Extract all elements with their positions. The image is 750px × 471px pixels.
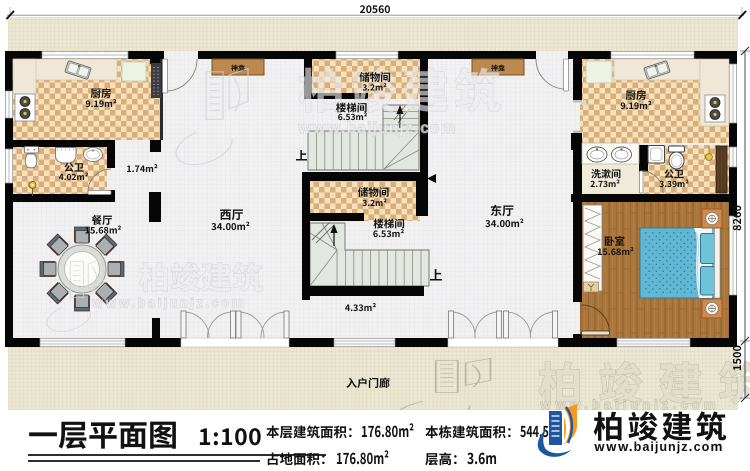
svg-text:2.73m²: 2.73m² — [590, 178, 620, 190]
svg-text:34.00m²: 34.00m² — [485, 216, 524, 230]
svg-text:本层建筑面积：: 本层建筑面积： — [266, 421, 361, 441]
svg-text:1:100: 1:100 — [198, 418, 262, 452]
svg-text:6.53m²: 6.53m² — [373, 227, 405, 240]
svg-text:3.2m²: 3.2m² — [362, 197, 387, 209]
svg-text:本栋建筑面积：: 本栋建筑面积： — [425, 421, 520, 441]
svg-text:柏竣建筑: 柏竣建筑 — [298, 53, 506, 122]
svg-text:占地面积：: 占地面积： — [266, 448, 334, 468]
svg-text:6.53m²: 6.53m² — [338, 111, 368, 123]
svg-text:3.39m²: 3.39m² — [659, 178, 689, 190]
svg-text:一层平面图: 一层平面图 — [28, 411, 178, 455]
svg-text:上: 上 — [429, 265, 442, 284]
svg-text:1.74m²: 1.74m² — [126, 162, 158, 175]
svg-text:176.80m²: 176.80m² — [361, 420, 414, 442]
svg-text:8260: 8260 — [729, 205, 745, 231]
svg-text:9.19m²: 9.19m² — [620, 99, 652, 112]
svg-text:3.6m: 3.6m — [467, 447, 497, 469]
svg-text:34.00m²: 34.00m² — [211, 219, 250, 233]
svg-text:上: 上 — [295, 147, 307, 164]
svg-text:层高：: 层高： — [425, 448, 466, 468]
svg-text:4.33m²: 4.33m² — [345, 301, 377, 314]
svg-text:入户门廊: 入户门廊 — [346, 375, 390, 391]
svg-text:1500: 1500 — [729, 345, 745, 371]
svg-text:20560: 20560 — [360, 2, 391, 17]
svg-text:15.68m²: 15.68m² — [597, 245, 634, 258]
svg-text:3.2m²: 3.2m² — [362, 82, 387, 94]
svg-text:www.baijunjz.com: www.baijunjz.com — [298, 116, 457, 138]
svg-text:4.02m²: 4.02m² — [59, 171, 89, 183]
svg-text:www.baijunjz.com: www.baijunjz.com — [92, 292, 246, 311]
svg-text:176.80m²: 176.80m² — [336, 447, 389, 469]
svg-text:9.19m²: 9.19m² — [85, 97, 117, 110]
svg-text:www.baijunjz.com: www.baijunjz.com — [594, 436, 723, 455]
svg-text:15.68m²: 15.68m² — [85, 224, 122, 237]
